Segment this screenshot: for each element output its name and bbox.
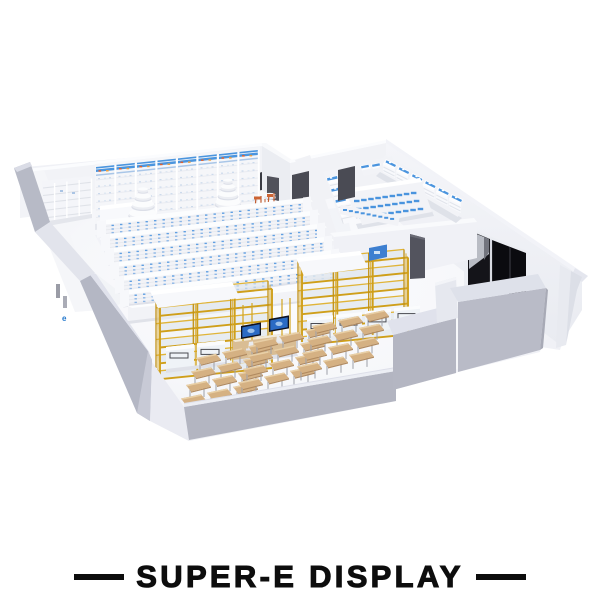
svg-text:e: e — [62, 314, 67, 323]
